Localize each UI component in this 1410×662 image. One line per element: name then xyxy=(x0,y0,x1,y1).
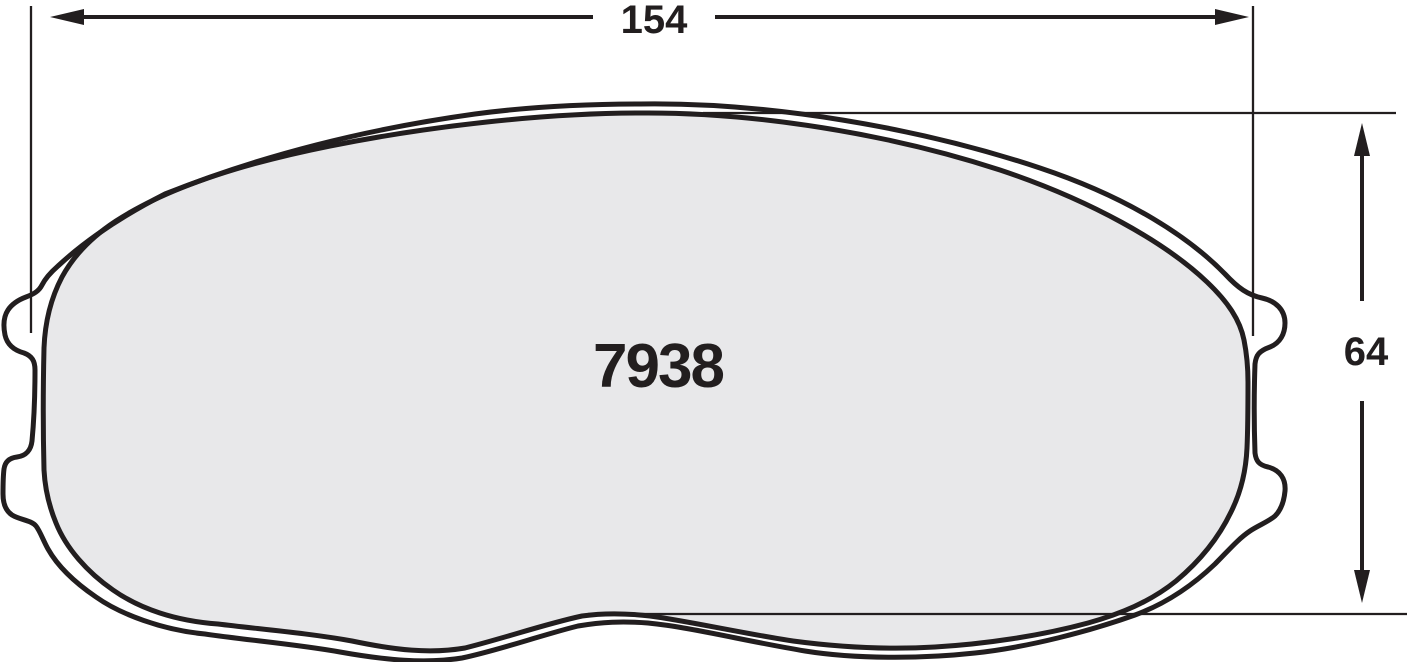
height-dimension-arrow-down-icon xyxy=(1354,570,1370,603)
height-dimension-arrow-up-icon xyxy=(1354,123,1370,156)
part-number-label: 7938 xyxy=(593,332,723,401)
width-dimension-label: 154 xyxy=(621,0,688,42)
drawing-svg: 154 64 7938 xyxy=(0,0,1410,662)
height-dimension-label: 64 xyxy=(1344,330,1389,374)
brake-pad-technical-drawing: 154 64 7938 xyxy=(0,0,1410,662)
width-dimension-arrow-right-icon xyxy=(1215,9,1249,25)
width-dimension-arrow-left-icon xyxy=(50,9,84,25)
